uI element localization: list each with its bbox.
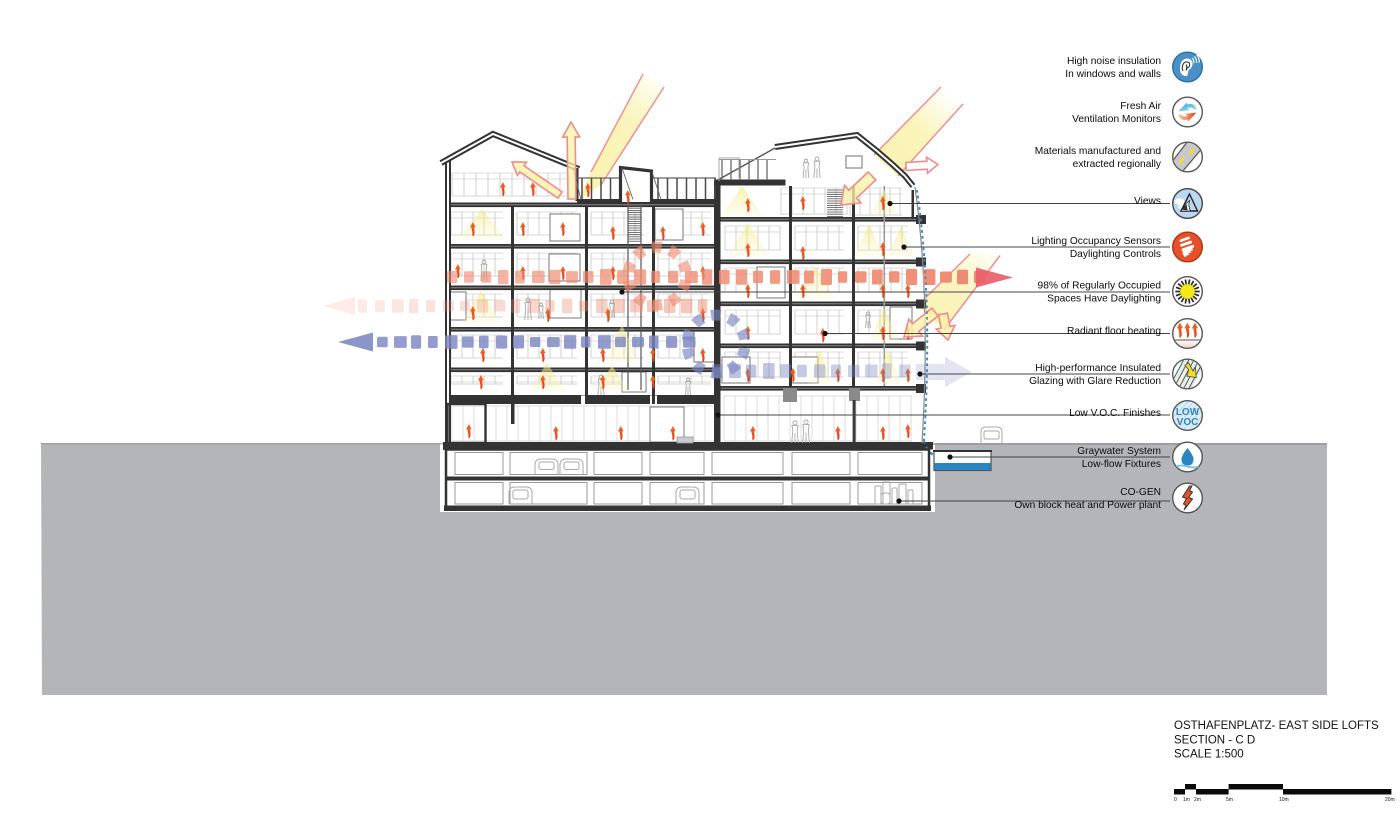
svg-text:Spaces Have Daylighting: Spaces Have Daylighting xyxy=(1047,294,1161,305)
svg-text:High noise insulation: High noise insulation xyxy=(1067,56,1161,67)
svg-text:Fresh Air: Fresh Air xyxy=(1120,101,1161,112)
svg-text:10m: 10m xyxy=(1279,797,1289,803)
svg-text:SECTION - C D: SECTION - C D xyxy=(1174,735,1255,747)
svg-text:Materials manufactured and: Materials manufactured and xyxy=(1035,146,1162,157)
svg-text:0: 0 xyxy=(1174,797,1177,803)
svg-text:High-performance Insulated: High-performance Insulated xyxy=(1035,363,1161,374)
svg-text:CO-GEN: CO-GEN xyxy=(1120,487,1161,498)
svg-text:In windows and walls: In windows and walls xyxy=(1065,69,1161,80)
svg-text:Glazing with Glare Reduction: Glazing with Glare Reduction xyxy=(1029,376,1161,387)
svg-text:extracted regionally: extracted regionally xyxy=(1073,159,1162,170)
svg-text:OSTHAFENPLATZ- EAST SIDE LOFTS: OSTHAFENPLATZ- EAST SIDE LOFTS xyxy=(1174,720,1379,732)
svg-text:Graywater System: Graywater System xyxy=(1077,446,1161,457)
svg-text:Own block heat and Power plant: Own block heat and Power plant xyxy=(1014,500,1161,511)
svg-text:20m: 20m xyxy=(1385,797,1395,803)
svg-text:Ventilation Monitors: Ventilation Monitors xyxy=(1072,114,1161,125)
svg-text:SCALE 1:500: SCALE 1:500 xyxy=(1174,749,1244,761)
svg-text:VOC: VOC xyxy=(1177,417,1199,428)
svg-text:Radiant floor heating: Radiant floor heating xyxy=(1067,326,1161,337)
svg-text:Low V.O.C. Finishes: Low V.O.C. Finishes xyxy=(1069,408,1161,419)
svg-text:Lighting Occupancy Sensors: Lighting Occupancy Sensors xyxy=(1031,236,1161,247)
svg-text:98% of Regularly Occupied: 98% of Regularly Occupied xyxy=(1038,281,1162,292)
svg-text:Daylighting Controls: Daylighting Controls xyxy=(1070,249,1161,260)
svg-text:5m: 5m xyxy=(1226,797,1233,803)
svg-text:Low-flow Fixtures: Low-flow Fixtures xyxy=(1082,459,1161,470)
svg-text:1m: 1m xyxy=(1183,797,1190,803)
svg-text:2m: 2m xyxy=(1194,797,1201,803)
svg-text:Views: Views xyxy=(1134,196,1161,207)
